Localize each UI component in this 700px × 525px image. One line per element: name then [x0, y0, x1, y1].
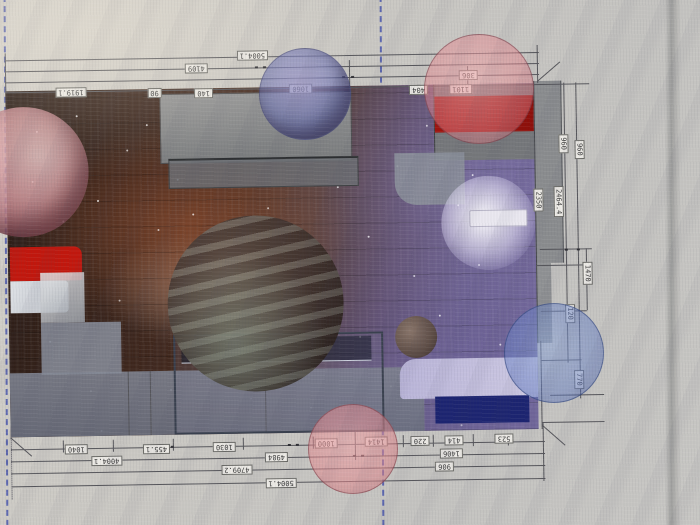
dim-label: 2350 [533, 189, 543, 212]
photographed-monitor: 5004.1 4109 1919.1 90 140 1060 404 306 1… [0, 0, 700, 525]
dim-conn [543, 421, 605, 423]
dim-label: 414 [445, 435, 464, 445]
dim-label: 2464.4 [553, 186, 563, 217]
dim-ext-line [11, 437, 14, 499]
dim-label: 960 [574, 140, 584, 159]
dim-ext-line [537, 45, 539, 83]
dim-line [11, 465, 545, 474]
dim-label: 220 [411, 436, 430, 446]
dim-arrow [171, 446, 174, 448]
annotation-circle-blue-top [259, 48, 351, 140]
dim-line [11, 441, 545, 450]
dim-label: 5004.1 [237, 50, 268, 60]
dim-ext-line [243, 438, 244, 450]
white-shelf-chip [469, 209, 527, 227]
annotation-circle-pink-bottom [308, 404, 398, 494]
navy-cabinet [435, 395, 529, 423]
dim-ext-line [473, 434, 474, 446]
dim-ext-line [433, 435, 434, 447]
leader-diagonal [10, 437, 32, 456]
leader-diagonal [542, 425, 565, 445]
dim-label: 523 [495, 433, 514, 443]
dim-ext-line [403, 435, 404, 447]
bottom-left-column [41, 322, 122, 375]
dim-label: 1470 [582, 262, 592, 285]
dim-arrow [296, 444, 299, 446]
dim-ext-line [113, 440, 114, 452]
dim-label: 5004.1 [265, 478, 296, 488]
dim-arrow [351, 76, 354, 78]
dim-arrow [577, 248, 580, 250]
annotation-circle-blue-bottomright [504, 303, 604, 403]
dim-label: 4984 [265, 452, 288, 462]
left-white-counter [40, 272, 85, 323]
dim-label: 4004.1 [91, 456, 122, 466]
dim-label: 90 [147, 88, 162, 98]
dim-label: 455.1 [143, 444, 170, 454]
dim-arrow [288, 444, 291, 446]
dim-label: 4709.2 [221, 465, 252, 475]
dim-arrow [255, 66, 258, 68]
dim-ext-line [63, 441, 64, 453]
dim-label: 1040 [65, 444, 88, 454]
counter-top-band [168, 156, 358, 189]
dim-label: 960 [558, 134, 568, 153]
dim-arrow [565, 249, 568, 251]
leader-diagonal [537, 62, 560, 82]
right-wall-upper [533, 81, 564, 263]
dim-label: 1919.1 [55, 87, 86, 97]
dim-label: 4109 [185, 63, 208, 73]
annotation-circle-pink-topright [424, 34, 534, 144]
dim-label: 906 [435, 461, 454, 471]
dim-label: 1030 [213, 442, 236, 452]
dim-label: 140 [194, 88, 213, 98]
dim-label: 1406 [440, 448, 463, 458]
